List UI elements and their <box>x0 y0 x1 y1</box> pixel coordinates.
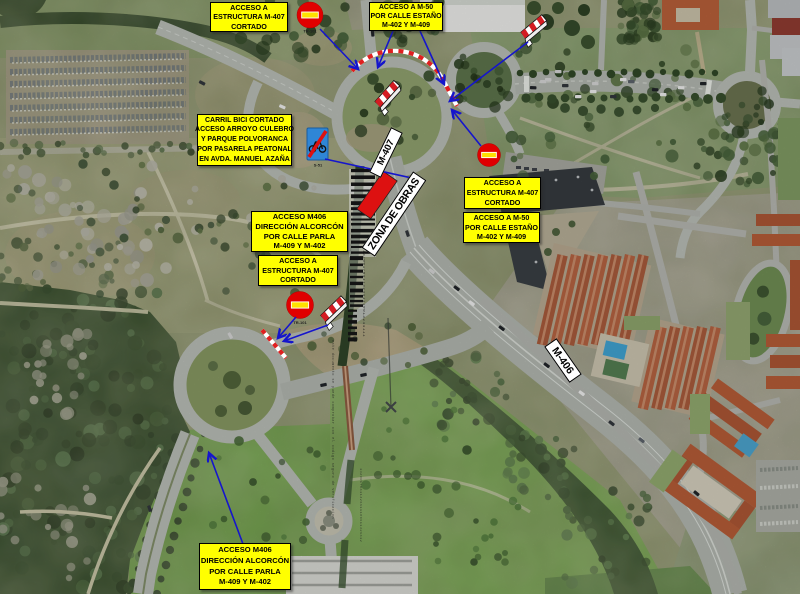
svg-text:S-51: S-51 <box>314 163 323 168</box>
svg-text:TR-101: TR-101 <box>303 29 317 34</box>
svg-text:TR-101: TR-101 <box>293 320 307 325</box>
